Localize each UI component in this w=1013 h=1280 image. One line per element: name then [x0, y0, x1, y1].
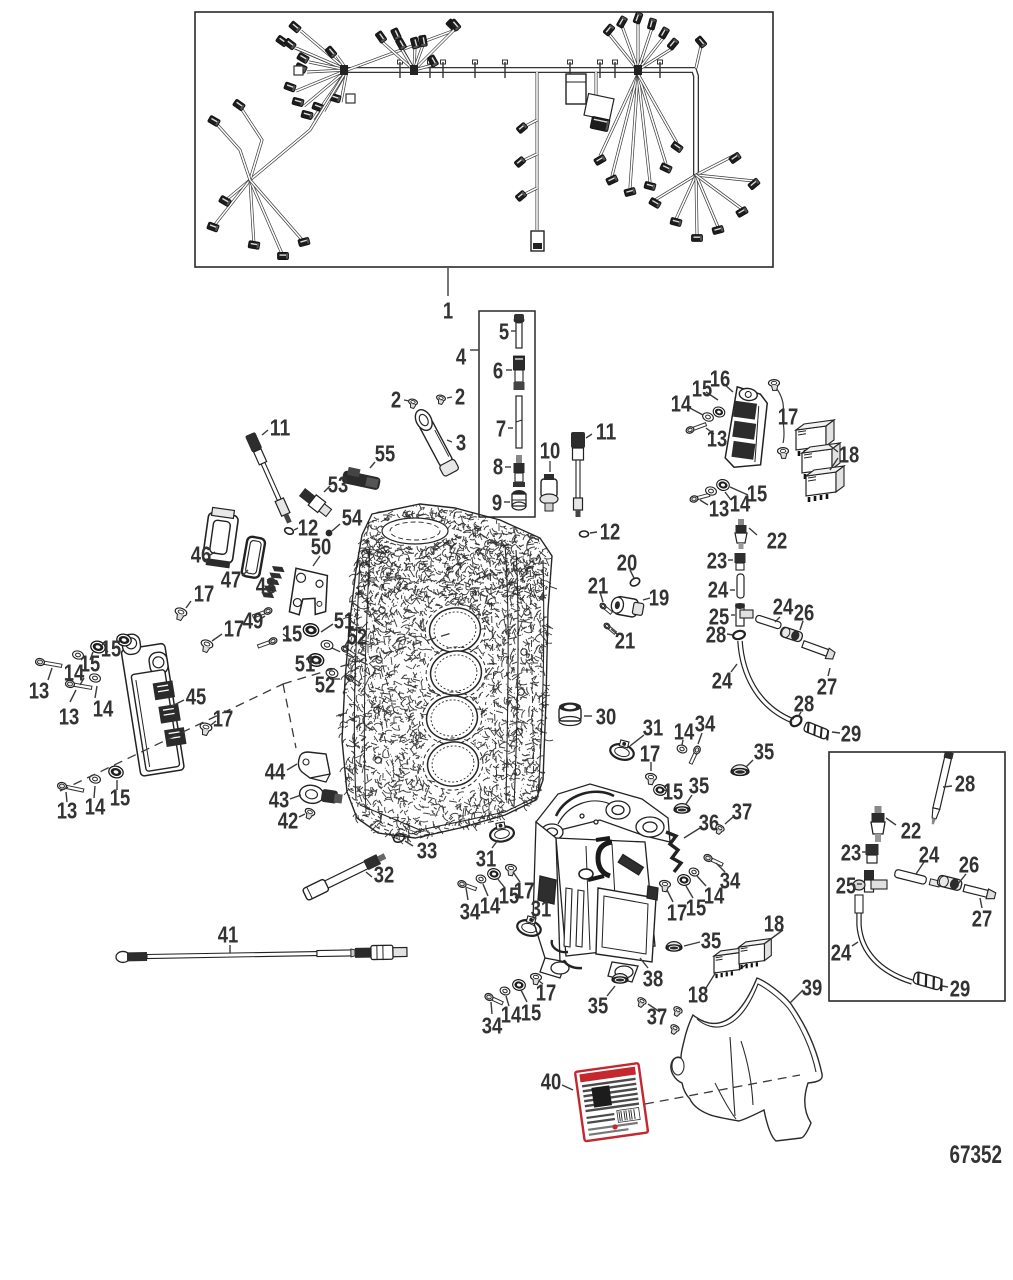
svg-text:24: 24	[919, 842, 940, 868]
svg-text:50: 50	[311, 534, 332, 560]
svg-text:14: 14	[480, 893, 501, 919]
svg-text:29: 29	[950, 976, 971, 1002]
svg-text:24: 24	[831, 940, 852, 966]
svg-text:23: 23	[707, 548, 728, 574]
svg-text:8: 8	[493, 454, 503, 480]
svg-text:40: 40	[541, 1069, 562, 1095]
svg-text:15: 15	[101, 636, 122, 662]
svg-text:44: 44	[265, 759, 286, 785]
svg-text:15: 15	[747, 481, 768, 507]
svg-text:34: 34	[695, 711, 716, 737]
svg-text:17: 17	[778, 404, 799, 430]
svg-text:4: 4	[456, 344, 466, 370]
svg-text:21: 21	[615, 628, 636, 654]
svg-text:18: 18	[764, 911, 785, 937]
svg-text:20: 20	[617, 550, 638, 576]
svg-text:17: 17	[640, 741, 661, 767]
svg-text:13: 13	[707, 426, 728, 452]
svg-text:54: 54	[342, 505, 363, 531]
svg-text:38: 38	[643, 966, 664, 992]
svg-text:16: 16	[710, 366, 731, 392]
svg-text:14: 14	[93, 696, 114, 722]
svg-text:14: 14	[704, 883, 725, 909]
svg-text:31: 31	[531, 896, 552, 922]
svg-text:24: 24	[708, 577, 729, 603]
svg-text:41: 41	[218, 922, 239, 948]
svg-text:13: 13	[57, 798, 78, 824]
svg-text:2: 2	[455, 384, 465, 410]
svg-text:45: 45	[186, 684, 207, 710]
svg-text:13: 13	[29, 678, 50, 704]
svg-text:14: 14	[85, 794, 106, 820]
svg-text:22: 22	[767, 528, 788, 554]
svg-text:32: 32	[374, 862, 395, 888]
svg-text:3: 3	[456, 430, 466, 456]
svg-text:24: 24	[773, 594, 794, 620]
svg-text:6: 6	[493, 358, 503, 384]
svg-text:15: 15	[282, 621, 303, 647]
svg-text:21: 21	[588, 573, 609, 599]
svg-text:15: 15	[663, 779, 684, 805]
svg-text:11: 11	[270, 415, 291, 441]
svg-text:14: 14	[501, 1002, 522, 1028]
svg-text:14: 14	[674, 719, 695, 745]
svg-text:29: 29	[841, 721, 862, 747]
svg-text:53: 53	[328, 472, 349, 498]
svg-text:25: 25	[836, 873, 857, 899]
svg-text:26: 26	[959, 852, 980, 878]
svg-text:37: 37	[647, 1004, 668, 1030]
svg-text:13: 13	[709, 496, 730, 522]
svg-text:47: 47	[221, 567, 242, 593]
svg-text:18: 18	[688, 982, 709, 1008]
svg-text:39: 39	[802, 975, 823, 1001]
svg-text:12: 12	[600, 519, 621, 545]
svg-text:33: 33	[417, 838, 438, 864]
svg-text:51: 51	[295, 651, 316, 677]
svg-text:35: 35	[689, 773, 710, 799]
svg-text:52: 52	[315, 672, 336, 698]
svg-text:5: 5	[499, 319, 509, 345]
svg-text:28: 28	[955, 771, 976, 797]
svg-text:48: 48	[256, 573, 277, 599]
svg-text:35: 35	[701, 928, 722, 954]
svg-text:24: 24	[712, 668, 733, 694]
svg-text:1: 1	[443, 298, 453, 324]
svg-text:35: 35	[754, 739, 775, 765]
svg-text:15: 15	[110, 785, 131, 811]
svg-text:17: 17	[224, 616, 245, 642]
svg-text:55: 55	[375, 441, 396, 467]
svg-text:28: 28	[706, 622, 727, 648]
svg-text:26: 26	[794, 600, 815, 626]
svg-text:34: 34	[482, 1013, 503, 1039]
svg-text:42: 42	[278, 808, 299, 834]
svg-text:10: 10	[540, 438, 561, 464]
svg-text:15: 15	[80, 651, 101, 677]
svg-text:7: 7	[496, 416, 506, 442]
svg-text:31: 31	[476, 846, 497, 872]
svg-text:28: 28	[794, 691, 815, 717]
svg-text:2: 2	[391, 387, 401, 413]
svg-text:49: 49	[243, 608, 264, 634]
svg-text:17: 17	[194, 581, 215, 607]
svg-text:9: 9	[492, 490, 502, 516]
svg-text:13: 13	[59, 704, 80, 730]
svg-text:15: 15	[686, 895, 707, 921]
svg-text:67352: 67352	[950, 1141, 1003, 1169]
svg-text:31: 31	[643, 715, 664, 741]
svg-text:22: 22	[901, 818, 922, 844]
svg-text:19: 19	[649, 585, 670, 611]
svg-text:34: 34	[460, 899, 481, 925]
svg-text:23: 23	[841, 840, 862, 866]
svg-text:30: 30	[596, 704, 617, 730]
svg-text:27: 27	[817, 674, 838, 700]
svg-text:11: 11	[596, 419, 617, 445]
svg-text:14: 14	[671, 391, 692, 417]
svg-text:46: 46	[191, 542, 212, 568]
svg-text:17: 17	[667, 900, 688, 926]
svg-text:27: 27	[972, 906, 993, 932]
svg-text:37: 37	[732, 799, 753, 825]
svg-text:15: 15	[692, 376, 713, 402]
svg-text:18: 18	[839, 442, 860, 468]
svg-text:17: 17	[536, 980, 557, 1006]
svg-text:35: 35	[588, 993, 609, 1019]
